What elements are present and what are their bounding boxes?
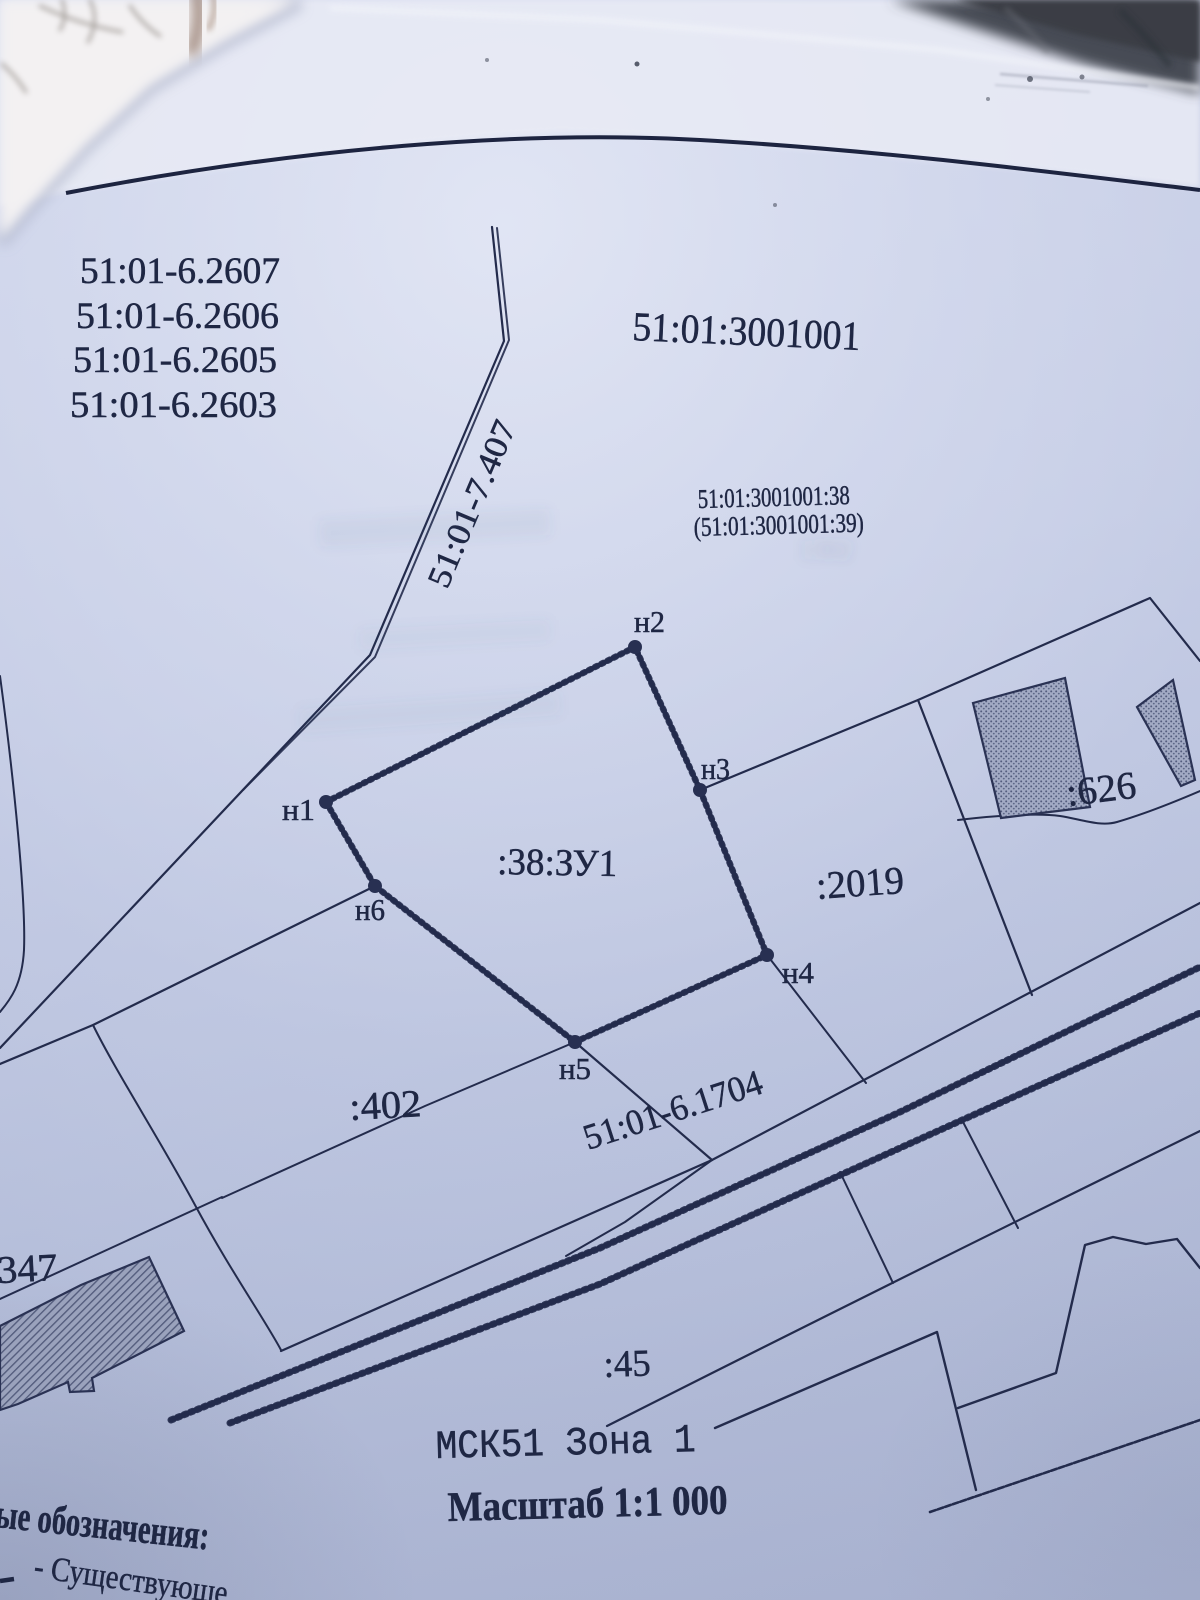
svg-text:Масштаб 1:1 000: Масштаб 1:1 000 <box>447 1478 728 1531</box>
svg-text::45: :45 <box>603 1342 651 1386</box>
svg-text:н3: н3 <box>701 751 730 786</box>
svg-text::402: :402 <box>348 1082 422 1129</box>
svg-text:н6: н6 <box>355 892 385 927</box>
svg-text::626: :626 <box>1064 764 1139 815</box>
svg-text:ые обозначения:: ые обозначения: <box>0 1490 212 1558</box>
svg-text:51:01-6.2607: 51:01-6.2607 <box>80 251 280 292</box>
svg-text:н2: н2 <box>634 604 665 639</box>
svg-text:51:01-7.407: 51:01-7.407 <box>421 415 524 593</box>
svg-text:51:01-6.1704: 51:01-6.1704 <box>578 1062 767 1158</box>
svg-text:51:01-6.2603: 51:01-6.2603 <box>70 385 277 426</box>
svg-text:н4: н4 <box>782 955 814 990</box>
svg-text:МСК51 Зона 1: МСК51 Зона 1 <box>435 1419 696 1471</box>
svg-text:51:01-6.2605: 51:01-6.2605 <box>73 340 277 381</box>
svg-text:51:01-6.2606: 51:01-6.2606 <box>76 296 279 337</box>
svg-text:347: 347 <box>0 1246 58 1292</box>
svg-text:51:01:3001001: 51:01:3001001 <box>632 303 862 359</box>
svg-text::2019: :2019 <box>815 859 906 908</box>
svg-text:н5: н5 <box>559 1051 591 1086</box>
svg-text:1302: 1302 <box>800 535 852 564</box>
svg-text:н1: н1 <box>282 792 315 827</box>
svg-text::38:ЗУ1: :38:ЗУ1 <box>497 841 618 885</box>
